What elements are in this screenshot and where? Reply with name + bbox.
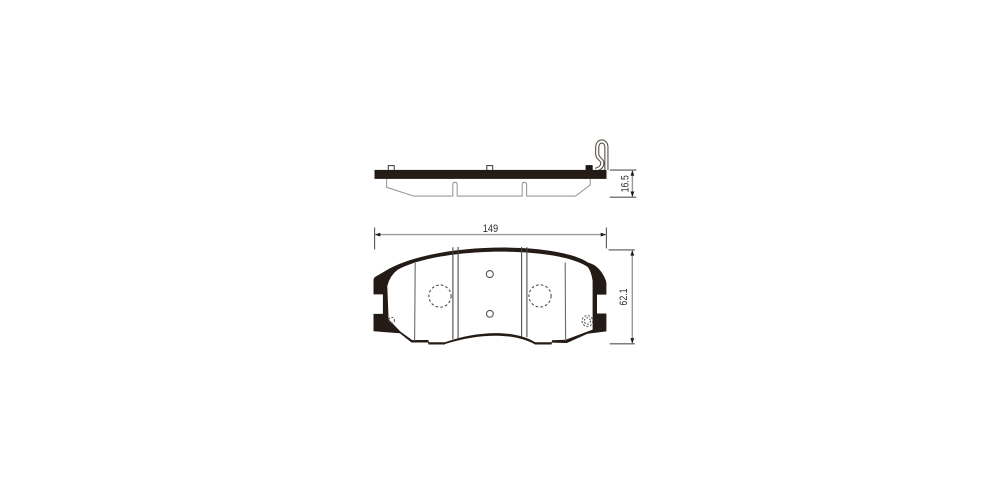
- svg-text:16.5: 16.5: [619, 175, 631, 192]
- svg-text:149: 149: [483, 223, 498, 235]
- svg-text:62.1: 62.1: [618, 288, 630, 305]
